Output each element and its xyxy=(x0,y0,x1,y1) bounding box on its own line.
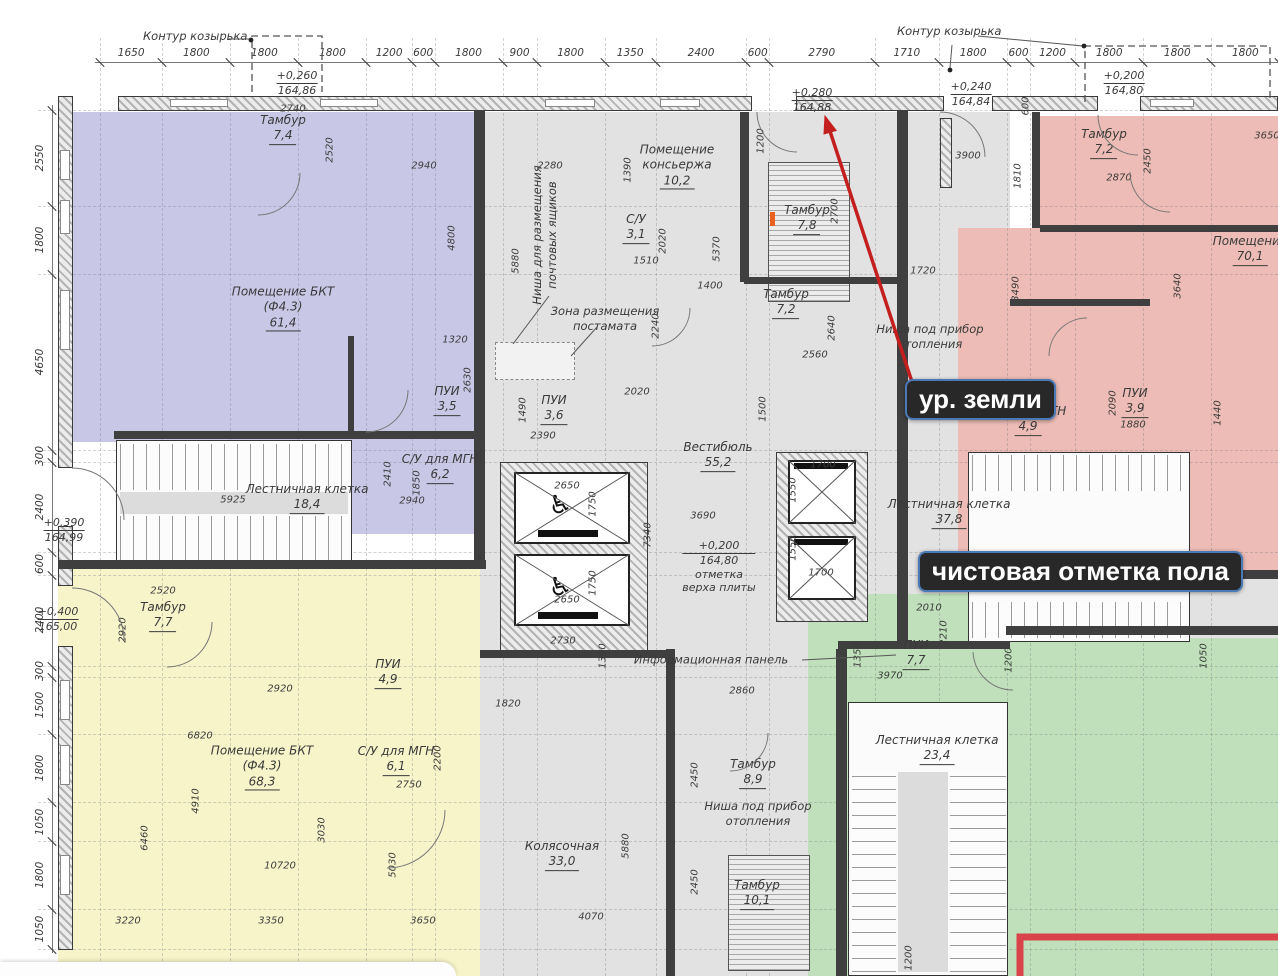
elevation-marker: +0,200164,80 xyxy=(1104,69,1145,98)
entrance-grate xyxy=(728,855,810,971)
interior-wall xyxy=(1010,299,1150,306)
room-area: 7,4 xyxy=(269,129,296,145)
interior-wall xyxy=(58,560,486,569)
room-name: консьержа xyxy=(640,158,715,173)
dimension-label: 1050 xyxy=(1199,643,1210,668)
grid-axis-horizontal xyxy=(38,734,1278,735)
room-area: 3,6 xyxy=(540,409,567,425)
elevation-marker: +0,280164,88 xyxy=(792,86,833,115)
bottom-overlay-bar xyxy=(0,962,456,976)
note-label: Ниша под приборотопления xyxy=(876,322,983,352)
dimension-label: 5880 xyxy=(621,833,632,858)
dimension-label: 11070 xyxy=(897,337,908,369)
elevation-absolute: 164,99 xyxy=(44,530,85,545)
elevator-sill xyxy=(538,612,598,619)
top-dimension: 1800 xyxy=(1164,47,1191,59)
note-label: Ниша для размещенияпочтовых ящиков xyxy=(530,165,560,304)
dimension-label: 2020 xyxy=(624,387,649,398)
dimension-label: 4800 xyxy=(447,225,458,250)
dimension-label: 1440 xyxy=(1213,400,1224,425)
room-area: 3,9 xyxy=(1121,402,1148,418)
note-line: Зона размещения xyxy=(551,304,660,319)
room-name: ПУИ xyxy=(433,384,460,399)
dimension-label: 1700 xyxy=(810,460,835,471)
room-area: 7,2 xyxy=(1090,143,1117,159)
left-dimension: 1050 xyxy=(34,916,46,943)
dimension-label: 2020 xyxy=(658,228,669,253)
room-label: Вестибюль55,2 xyxy=(683,440,752,472)
note-line: Ниша для размещения xyxy=(530,165,545,304)
elevation-absolute: 164,80 xyxy=(682,553,755,568)
elevation-marker: +0,260164,86 xyxy=(277,69,318,98)
top-dimension: 1800 xyxy=(251,47,278,59)
grid-axis-vertical xyxy=(412,38,413,976)
elevation-relative: +0,390 xyxy=(44,516,85,530)
dim-chain-line-top xyxy=(95,62,1278,63)
interior-wall xyxy=(897,110,908,646)
room-label: ПУИ7,7 xyxy=(902,638,929,670)
leader-dot xyxy=(948,68,953,73)
dimension-label: 2280 xyxy=(537,161,562,172)
dimension-label: 4070 xyxy=(578,912,603,923)
dimension-label: 2520 xyxy=(150,586,175,597)
postamat-zone-outline xyxy=(495,342,575,380)
room-area: 6,2 xyxy=(426,468,453,484)
dimension-label: 5925 xyxy=(220,495,245,506)
room-label: Тамбур7,7 xyxy=(140,600,186,632)
dimension-label: 2210 xyxy=(939,620,950,645)
top-dimension: 1800 xyxy=(455,47,482,59)
interior-wall xyxy=(744,277,902,284)
note-line: почтовых ящиков xyxy=(545,165,560,304)
elevation-absolute: 164,80 xyxy=(1104,83,1145,98)
dimension-label: 1200 xyxy=(1004,647,1015,672)
dimension-label: 1200 xyxy=(904,945,915,970)
dimension-label: 2560 xyxy=(802,350,827,361)
room-area: 70,1 xyxy=(1233,250,1268,266)
dimension-label: 2940 xyxy=(399,496,424,507)
dimension-label: 1720 xyxy=(910,266,935,277)
interior-wall xyxy=(474,110,485,568)
left-dimension: 4650 xyxy=(34,349,46,376)
grid-axis-vertical xyxy=(100,38,101,976)
room-label: Лестничная клетка23,4 xyxy=(876,733,999,765)
grid-axis-horizontal xyxy=(38,206,1278,207)
elevation-relative: +0,280 xyxy=(792,86,833,100)
top-dimension: 1710 xyxy=(893,47,920,59)
room-name: С/У для МГН xyxy=(358,744,435,759)
room-label: Лестничная клетка37,8 xyxy=(888,497,1011,529)
left-dimension: 300 xyxy=(34,661,46,681)
top-dimension: 1800 xyxy=(183,47,210,59)
dimension-label: 5880 xyxy=(511,248,522,273)
room-name: Тамбур xyxy=(1081,127,1127,142)
dimension-label: 2650 xyxy=(554,595,579,606)
elevation-marker: +0,400165,00 xyxy=(38,605,79,634)
dimension-label: 2450 xyxy=(690,869,701,894)
grid-axis-vertical xyxy=(435,38,436,976)
window xyxy=(320,99,378,107)
dimension-label: 2390 xyxy=(530,431,555,442)
dimension-label: 3650 xyxy=(1254,131,1278,142)
elevation-relative: +0,240 xyxy=(951,80,992,94)
canopy-label-left: Контур козырька xyxy=(143,29,247,43)
note-line: отопления xyxy=(704,814,811,829)
room-name: Лестничная клетка xyxy=(876,733,999,748)
dimension-label: 1750 xyxy=(588,570,599,595)
stair-treads xyxy=(120,516,348,562)
elevation-marker: +0,390164,99 xyxy=(44,516,85,545)
grid-axis-horizontal xyxy=(38,677,1278,678)
dimension-label: 2450 xyxy=(1143,148,1154,173)
dimension-label: 3220 xyxy=(115,916,140,927)
top-dimension: 2790 xyxy=(808,47,835,59)
dimension-label: 2860 xyxy=(729,686,754,697)
canopy-label-right: Контур козырька xyxy=(897,24,1001,38)
top-dimension: 1800 xyxy=(1096,47,1123,59)
window xyxy=(545,99,595,107)
room-area: 8,9 xyxy=(739,773,766,789)
dimension-label: 2200 xyxy=(433,745,444,770)
elevation-relative: +0,200 xyxy=(1104,69,1145,83)
top-dimension: 1800 xyxy=(1232,47,1259,59)
top-dimension: 1800 xyxy=(319,47,346,59)
dimension-label: 2410 xyxy=(383,461,394,486)
top-dimension: 1800 xyxy=(960,47,987,59)
room-name: С/У xyxy=(622,212,649,227)
dimension-label: 1350 xyxy=(598,643,609,668)
note-label: Информационная панель xyxy=(634,653,788,668)
room-name: Вестибюль xyxy=(683,440,752,455)
room-area: 23,4 xyxy=(920,749,955,765)
grid-axis-horizontal xyxy=(38,949,1278,950)
note-line: Информационная панель xyxy=(634,653,788,668)
room-name: Помещение xyxy=(1213,234,1278,249)
room-name: (Ф4.3) xyxy=(232,300,334,315)
window xyxy=(60,150,70,180)
interior-wall xyxy=(114,431,482,439)
elevator-sill xyxy=(538,530,598,537)
dimension-label: 2650 xyxy=(554,481,579,492)
dimension-label: 7340 xyxy=(643,522,654,547)
ground-level-badge[interactable]: ур. земли xyxy=(905,379,1056,420)
room-name: ПУИ xyxy=(902,638,929,653)
room-label: ПУИ4,9 xyxy=(374,657,401,689)
dimension-label: 2240 xyxy=(651,313,662,338)
dimension-label: 1850 xyxy=(412,470,423,495)
elevator-sill xyxy=(794,539,848,545)
room-area: 10,1 xyxy=(740,894,775,910)
room-name: Лестничная клетка xyxy=(888,497,1011,512)
dimension-label: 2090 xyxy=(1108,390,1119,415)
room-label: ПУИ3,6 xyxy=(540,393,567,425)
floor-plan-canvas: ♿♿ 1650180018001800120060018009001800135… xyxy=(0,0,1278,976)
elevation-absolute: 164,88 xyxy=(792,100,833,115)
dimension-label: 1390 xyxy=(623,157,634,182)
dimension-label: 2920 xyxy=(118,617,129,642)
elevation-relative: +0,260 xyxy=(277,69,318,83)
dimension-label: 2740 xyxy=(280,104,305,115)
room-area: 7,2 xyxy=(772,303,799,319)
room-area: 3,5 xyxy=(433,400,460,416)
elevation-marker: +0,240164,84 xyxy=(951,80,992,109)
top-dimension: 1650 xyxy=(118,47,145,59)
left-dimension: 300 xyxy=(34,446,46,466)
room-area: 33,0 xyxy=(545,855,580,871)
window xyxy=(170,99,228,107)
grid-axis-horizontal xyxy=(38,274,1278,275)
dimension-label: 1550 xyxy=(788,477,799,502)
window xyxy=(660,99,700,107)
dimension-label: 2640 xyxy=(827,315,838,340)
room-label: Помещениеконсьержа10,2 xyxy=(640,142,715,189)
room-label: Колясочная33,0 xyxy=(525,839,599,871)
note-line: Ниша под прибор xyxy=(876,322,983,337)
stair-treads xyxy=(950,772,1006,972)
dimension-label: 2870 xyxy=(1106,173,1131,184)
top-dimension: 1800 xyxy=(557,47,584,59)
dimension-label: 2730 xyxy=(550,636,575,647)
room-name: Тамбур xyxy=(734,878,780,893)
room-area: 7,8 xyxy=(793,219,820,235)
room-area: 7,7 xyxy=(149,616,176,632)
room-label: Помещение БКТ(Ф4.3)68,3 xyxy=(211,743,313,790)
room-name: Тамбур xyxy=(763,287,809,302)
top-dimension: 1200 xyxy=(1039,47,1066,59)
dimension-label: 5030 xyxy=(388,852,399,877)
dimension-label: 6460 xyxy=(140,825,151,850)
dimension-label: 3490 xyxy=(1011,276,1022,301)
left-dimension: 600 xyxy=(34,554,46,574)
window xyxy=(60,855,70,895)
dimension-label: 4910 xyxy=(191,788,202,813)
room-name: ПУИ xyxy=(374,657,401,672)
exterior-wall xyxy=(940,118,952,188)
top-dimension: 1350 xyxy=(617,47,644,59)
room-label: ПУИ3,9 xyxy=(1121,386,1148,418)
leader-line xyxy=(950,45,952,68)
room-name: Помещение xyxy=(640,142,715,157)
left-dimension: 1500 xyxy=(34,692,46,719)
dimension-label: 1820 xyxy=(495,699,520,710)
dimension-label: 3640 xyxy=(1173,273,1184,298)
window xyxy=(60,680,70,720)
dimension-label: 1880 xyxy=(1120,420,1145,431)
left-dimension: 1800 xyxy=(34,862,46,889)
note-label: Зона размещенияпостамата xyxy=(551,304,660,334)
dimension-label: 2630 xyxy=(463,367,474,392)
window xyxy=(60,290,70,350)
exterior-wall xyxy=(992,96,1098,111)
room-label: Тамбур8,9 xyxy=(730,757,776,789)
dimension-label: 3690 xyxy=(690,511,715,522)
top-dimension: 1200 xyxy=(376,47,403,59)
leader-dot xyxy=(1082,44,1087,49)
dimension-label: 2920 xyxy=(267,684,292,695)
note-line: постамата xyxy=(551,319,660,334)
room-name: Помещение БКТ xyxy=(211,743,313,758)
room-name: ПУИ xyxy=(1121,386,1148,401)
room-name: Тамбур xyxy=(260,113,306,128)
room-area: 4,9 xyxy=(374,673,401,689)
dimension-label: 1750 xyxy=(588,491,599,516)
room-label: Тамбур7,2 xyxy=(763,287,809,319)
room-area: 10,2 xyxy=(660,173,695,189)
grid-axis-horizontal xyxy=(38,909,1278,910)
room-name: Тамбур xyxy=(140,600,186,615)
dimension-label: 2520 xyxy=(325,137,336,162)
note-line: отопления xyxy=(876,337,983,352)
elevation-absolute: 165,00 xyxy=(38,619,79,634)
dimension-label: 1550 xyxy=(788,535,799,560)
dimension-label: 1350 xyxy=(853,642,864,667)
left-dimension: 2550 xyxy=(34,145,46,172)
room-label: Тамбур7,8 xyxy=(784,203,830,235)
grid-axis-vertical xyxy=(1211,38,1212,976)
room-area: 68,3 xyxy=(245,774,280,790)
window xyxy=(1150,99,1194,107)
interior-wall xyxy=(1040,225,1278,232)
dimension-label: 1700 xyxy=(808,568,833,579)
grid-axis-horizontal xyxy=(38,802,1278,803)
room-area: 3,1 xyxy=(622,228,649,244)
floor-level-badge[interactable]: чистовая отметка пола xyxy=(918,551,1243,592)
room-name: Тамбур xyxy=(784,203,830,218)
room-name: С/У для МГН xyxy=(402,452,479,467)
room-label: Тамбур7,2 xyxy=(1081,127,1127,159)
dimension-label: 3030 xyxy=(317,817,328,842)
room-area: 18,4 xyxy=(290,498,325,514)
dimension-label: 6820 xyxy=(187,731,212,742)
room-name: (Ф4.3) xyxy=(211,759,313,774)
left-dimension: 1800 xyxy=(34,754,46,781)
dimension-label: 1490 xyxy=(518,397,529,422)
room-name: Помещение БКТ xyxy=(232,284,334,299)
room-area: 6,1 xyxy=(382,760,409,776)
note-line: Ниша под прибор xyxy=(704,799,811,814)
room-label: Лестничная клетка18,4 xyxy=(246,482,369,514)
interior-wall xyxy=(740,112,749,282)
dimension-label: 5370 xyxy=(712,236,723,261)
dimension-label: 600 xyxy=(1021,96,1032,115)
room-area: 4,9 xyxy=(1014,420,1041,436)
room-label: Помещение70,1 xyxy=(1213,234,1278,266)
room-name: Колясочная xyxy=(525,839,599,854)
elevation-absolute: 164,84 xyxy=(951,94,992,109)
grid-axis-horizontal xyxy=(38,841,1278,842)
stair-treads xyxy=(852,772,896,972)
dimension-label: 2700 xyxy=(830,198,841,223)
room-area: 7,7 xyxy=(902,654,929,670)
room-label: С/У3,1 xyxy=(622,212,649,244)
room-area: 55,2 xyxy=(701,456,736,472)
room-label: Помещение БКТ(Ф4.3)61,4 xyxy=(232,284,334,331)
top-dimension: 900 xyxy=(510,47,530,59)
dimension-label: 1810 xyxy=(1013,163,1024,188)
dimension-label: 3900 xyxy=(955,151,980,162)
dimension-label: 1200 xyxy=(756,128,767,153)
interior-wall xyxy=(836,649,847,976)
dimension-label: 2010 xyxy=(916,603,941,614)
stair-treads xyxy=(972,455,1186,491)
room-label: ПУИ3,5 xyxy=(433,384,460,416)
leader-dot xyxy=(249,38,254,43)
room-area: 61,4 xyxy=(266,315,301,331)
dimension-label: 2750 xyxy=(396,780,421,791)
interior-wall xyxy=(348,336,354,432)
room-label: Тамбур7,4 xyxy=(260,113,306,145)
dimension-label: 3650 xyxy=(410,916,435,927)
elevation-relative: +0,200 xyxy=(682,539,755,553)
interior-wall xyxy=(1006,626,1278,635)
interior-wall xyxy=(666,649,675,976)
room-label: Тамбур10,1 xyxy=(734,878,780,910)
note-label: Ниша под приборотопления xyxy=(704,799,811,829)
left-dimension: 1050 xyxy=(34,808,46,835)
dimension-label: 1320 xyxy=(442,335,467,346)
elevation-note: верха плиты xyxy=(682,581,755,595)
dimension-label: 1400 xyxy=(697,281,722,292)
room-label: С/У для МГН6,1 xyxy=(358,744,435,776)
elevation-note: отметка xyxy=(682,568,755,582)
dimension-label: 3970 xyxy=(877,671,902,682)
stair-landing xyxy=(898,772,948,972)
window xyxy=(60,200,70,234)
elevation-marker: +0,200164,80отметкаверха плиты xyxy=(682,539,755,595)
zone-green xyxy=(1005,638,1278,976)
dimension-label: 3350 xyxy=(258,916,283,927)
interior-wall xyxy=(1032,112,1040,228)
elevation-relative: +0,400 xyxy=(38,605,79,619)
room-name: ПУИ xyxy=(540,393,567,408)
window xyxy=(60,745,70,785)
dimension-label: 1510 xyxy=(633,256,658,267)
room-name: Лестничная клетка xyxy=(246,482,369,497)
dimension-label: 10720 xyxy=(264,861,296,872)
dimension-label: 1500 xyxy=(758,396,769,421)
room-name: Тамбур xyxy=(730,757,776,772)
dimension-label: 2940 xyxy=(411,161,436,172)
elevation-absolute: 164,86 xyxy=(277,83,318,98)
room-area: 37,8 xyxy=(932,513,967,529)
orange-marker xyxy=(770,212,775,226)
top-dimension: 2400 xyxy=(688,47,715,59)
dimension-label: 2450 xyxy=(690,762,701,787)
left-dimension: 1800 xyxy=(34,227,46,254)
